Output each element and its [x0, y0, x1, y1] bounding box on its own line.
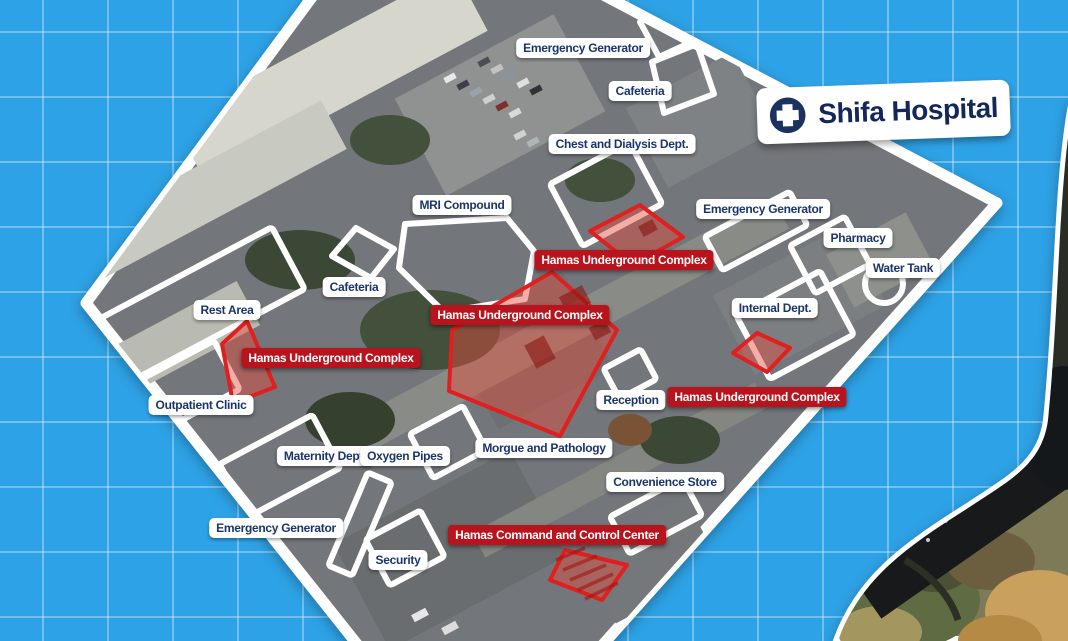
threat-label-hamas-underground-right: Hamas Underground Complex: [667, 387, 846, 407]
facility-label-internal-dept: Internal Dept.: [732, 298, 818, 318]
facility-label-outpatient-clinic: Outpatient Clinic: [149, 395, 254, 415]
threat-label-hamas-underground-top: Hamas Underground Complex: [534, 250, 713, 270]
facility-label-convenience-store: Convenience Store: [606, 472, 724, 492]
facility-label-emergency-generator-bottom: Emergency Generator: [209, 518, 343, 538]
facility-label-mri-compound: MRI Compound: [412, 195, 511, 215]
facility-label-oxygen-pipes: Oxygen Pipes: [360, 446, 450, 466]
threat-label-hamas-underground-left: Hamas Underground Complex: [241, 348, 420, 368]
facility-label-reception: Reception: [596, 390, 665, 410]
facility-label-water-tank: Water Tank: [866, 258, 940, 278]
facility-label-chest-dialysis-dept: Chest and Dialysis Dept.: [549, 134, 696, 154]
medical-cross-icon: [768, 93, 807, 138]
facility-label-maternity-dept: Maternity Dept.: [277, 446, 373, 466]
facility-label-rest-area: Rest Area: [194, 300, 261, 320]
facility-label-pharmacy: Pharmacy: [824, 228, 893, 248]
facility-label-cafeteria-left: Cafeteria: [323, 277, 386, 297]
facility-label-emergency-generator-right: Emergency Generator: [696, 199, 830, 219]
threat-label-hamas-command-center: Hamas Command and Control Center: [448, 525, 666, 545]
infographic-canvas: Emergency GeneratorCafeteriaChest and Di…: [0, 0, 1068, 641]
facility-label-security: Security: [369, 550, 428, 570]
page-title: Shifa Hospital: [818, 92, 999, 130]
facility-label-morgue-pathology: Morgue and Pathology: [475, 438, 612, 458]
facility-label-emergency-generator-top: Emergency Generator: [516, 38, 650, 58]
facility-label-cafeteria-top: Cafeteria: [609, 81, 672, 101]
threat-label-hamas-underground-mid: Hamas Underground Complex: [430, 305, 609, 325]
title-plate: Shifa Hospital: [756, 80, 1011, 145]
